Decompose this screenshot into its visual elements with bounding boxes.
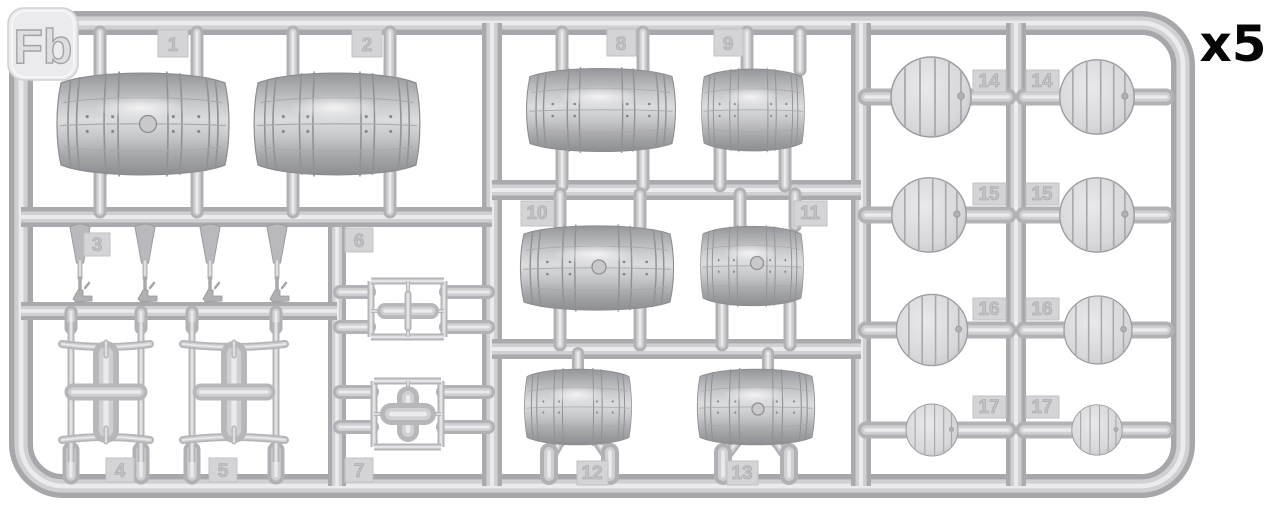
tag-number: 4 [115, 461, 126, 482]
tag-number: 17 [1031, 397, 1052, 418]
part-2-large-barrel [254, 72, 420, 177]
tag-number: 14 [1031, 71, 1053, 92]
part-tag-14-right: 14 [1026, 70, 1059, 92]
tag-number: 8 [616, 34, 627, 55]
part-9-barrel [702, 68, 805, 152]
part-tag-10: 10 [521, 201, 554, 226]
part-17-lid-left [906, 403, 958, 458]
part-tag-5: 5 [209, 458, 237, 482]
part-15-lid-left [892, 176, 966, 254]
part-16-lid-right [1064, 294, 1132, 365]
part-tag-9: 9 [714, 29, 743, 56]
tag-number: 13 [731, 463, 752, 484]
part-tag-3: 3 [84, 233, 110, 256]
part-15-lid-right [1060, 176, 1134, 254]
part-tag-7: 7 [345, 458, 373, 482]
part-tag-17-right: 17 [1026, 396, 1059, 418]
part-tag-13: 13 [727, 461, 758, 485]
part-tag-16-right: 16 [1026, 298, 1059, 320]
tag-number: 12 [581, 463, 602, 484]
tag-number: 16 [1031, 299, 1052, 320]
part-12-small-barrel [525, 368, 632, 446]
tag-number: 10 [526, 203, 547, 224]
part-tag-15-left: 15 [973, 183, 1006, 205]
part-16-lid-left [896, 293, 967, 368]
tag-number: 9 [723, 34, 734, 55]
tag-number: 7 [354, 461, 365, 482]
part-tag-1: 1 [158, 30, 188, 57]
part-17-lid-right [1072, 404, 1122, 457]
tag-number: 3 [92, 235, 103, 256]
tag-number: 5 [218, 461, 229, 482]
part-14-lid-right [1060, 58, 1134, 136]
part-tag-4: 4 [106, 458, 134, 482]
part-8-barrel [527, 67, 676, 153]
part-14-lid-left [891, 55, 971, 139]
part-tag-16-left: 16 [973, 298, 1006, 320]
part-tag-12: 12 [577, 461, 608, 485]
part-tag-11: 11 [794, 201, 827, 226]
tag-number: 17 [978, 397, 999, 418]
tag-number: 15 [978, 184, 1000, 205]
tag-number: 15 [1031, 184, 1053, 205]
part-tag-17-left: 17 [973, 396, 1006, 418]
sprue-label-tab: Fb [8, 8, 78, 80]
tag-number: 16 [978, 299, 999, 320]
sprue-photo: 1 2 3 4 5 6 7 8 9 10 11 12 13 14 14 15 1… [0, 0, 1268, 508]
part-tag-8: 8 [607, 29, 636, 56]
tag-number: 1 [168, 35, 179, 56]
quantity-label: x5 [1199, 15, 1266, 73]
part-tag-15-right: 15 [1026, 183, 1059, 205]
part-tag-6: 6 [345, 228, 373, 252]
tag-number: 6 [354, 231, 365, 252]
part-tag-2: 2 [352, 30, 382, 57]
sprue-sheet: 1 2 3 4 5 6 7 8 9 10 11 12 13 14 14 15 1… [0, 0, 1268, 508]
tag-number: 14 [978, 71, 1000, 92]
tag-number: 2 [362, 35, 373, 56]
part-tag-14-left: 14 [973, 70, 1006, 92]
tag-number: 11 [800, 203, 821, 224]
sprue-label: Fb [14, 21, 73, 74]
